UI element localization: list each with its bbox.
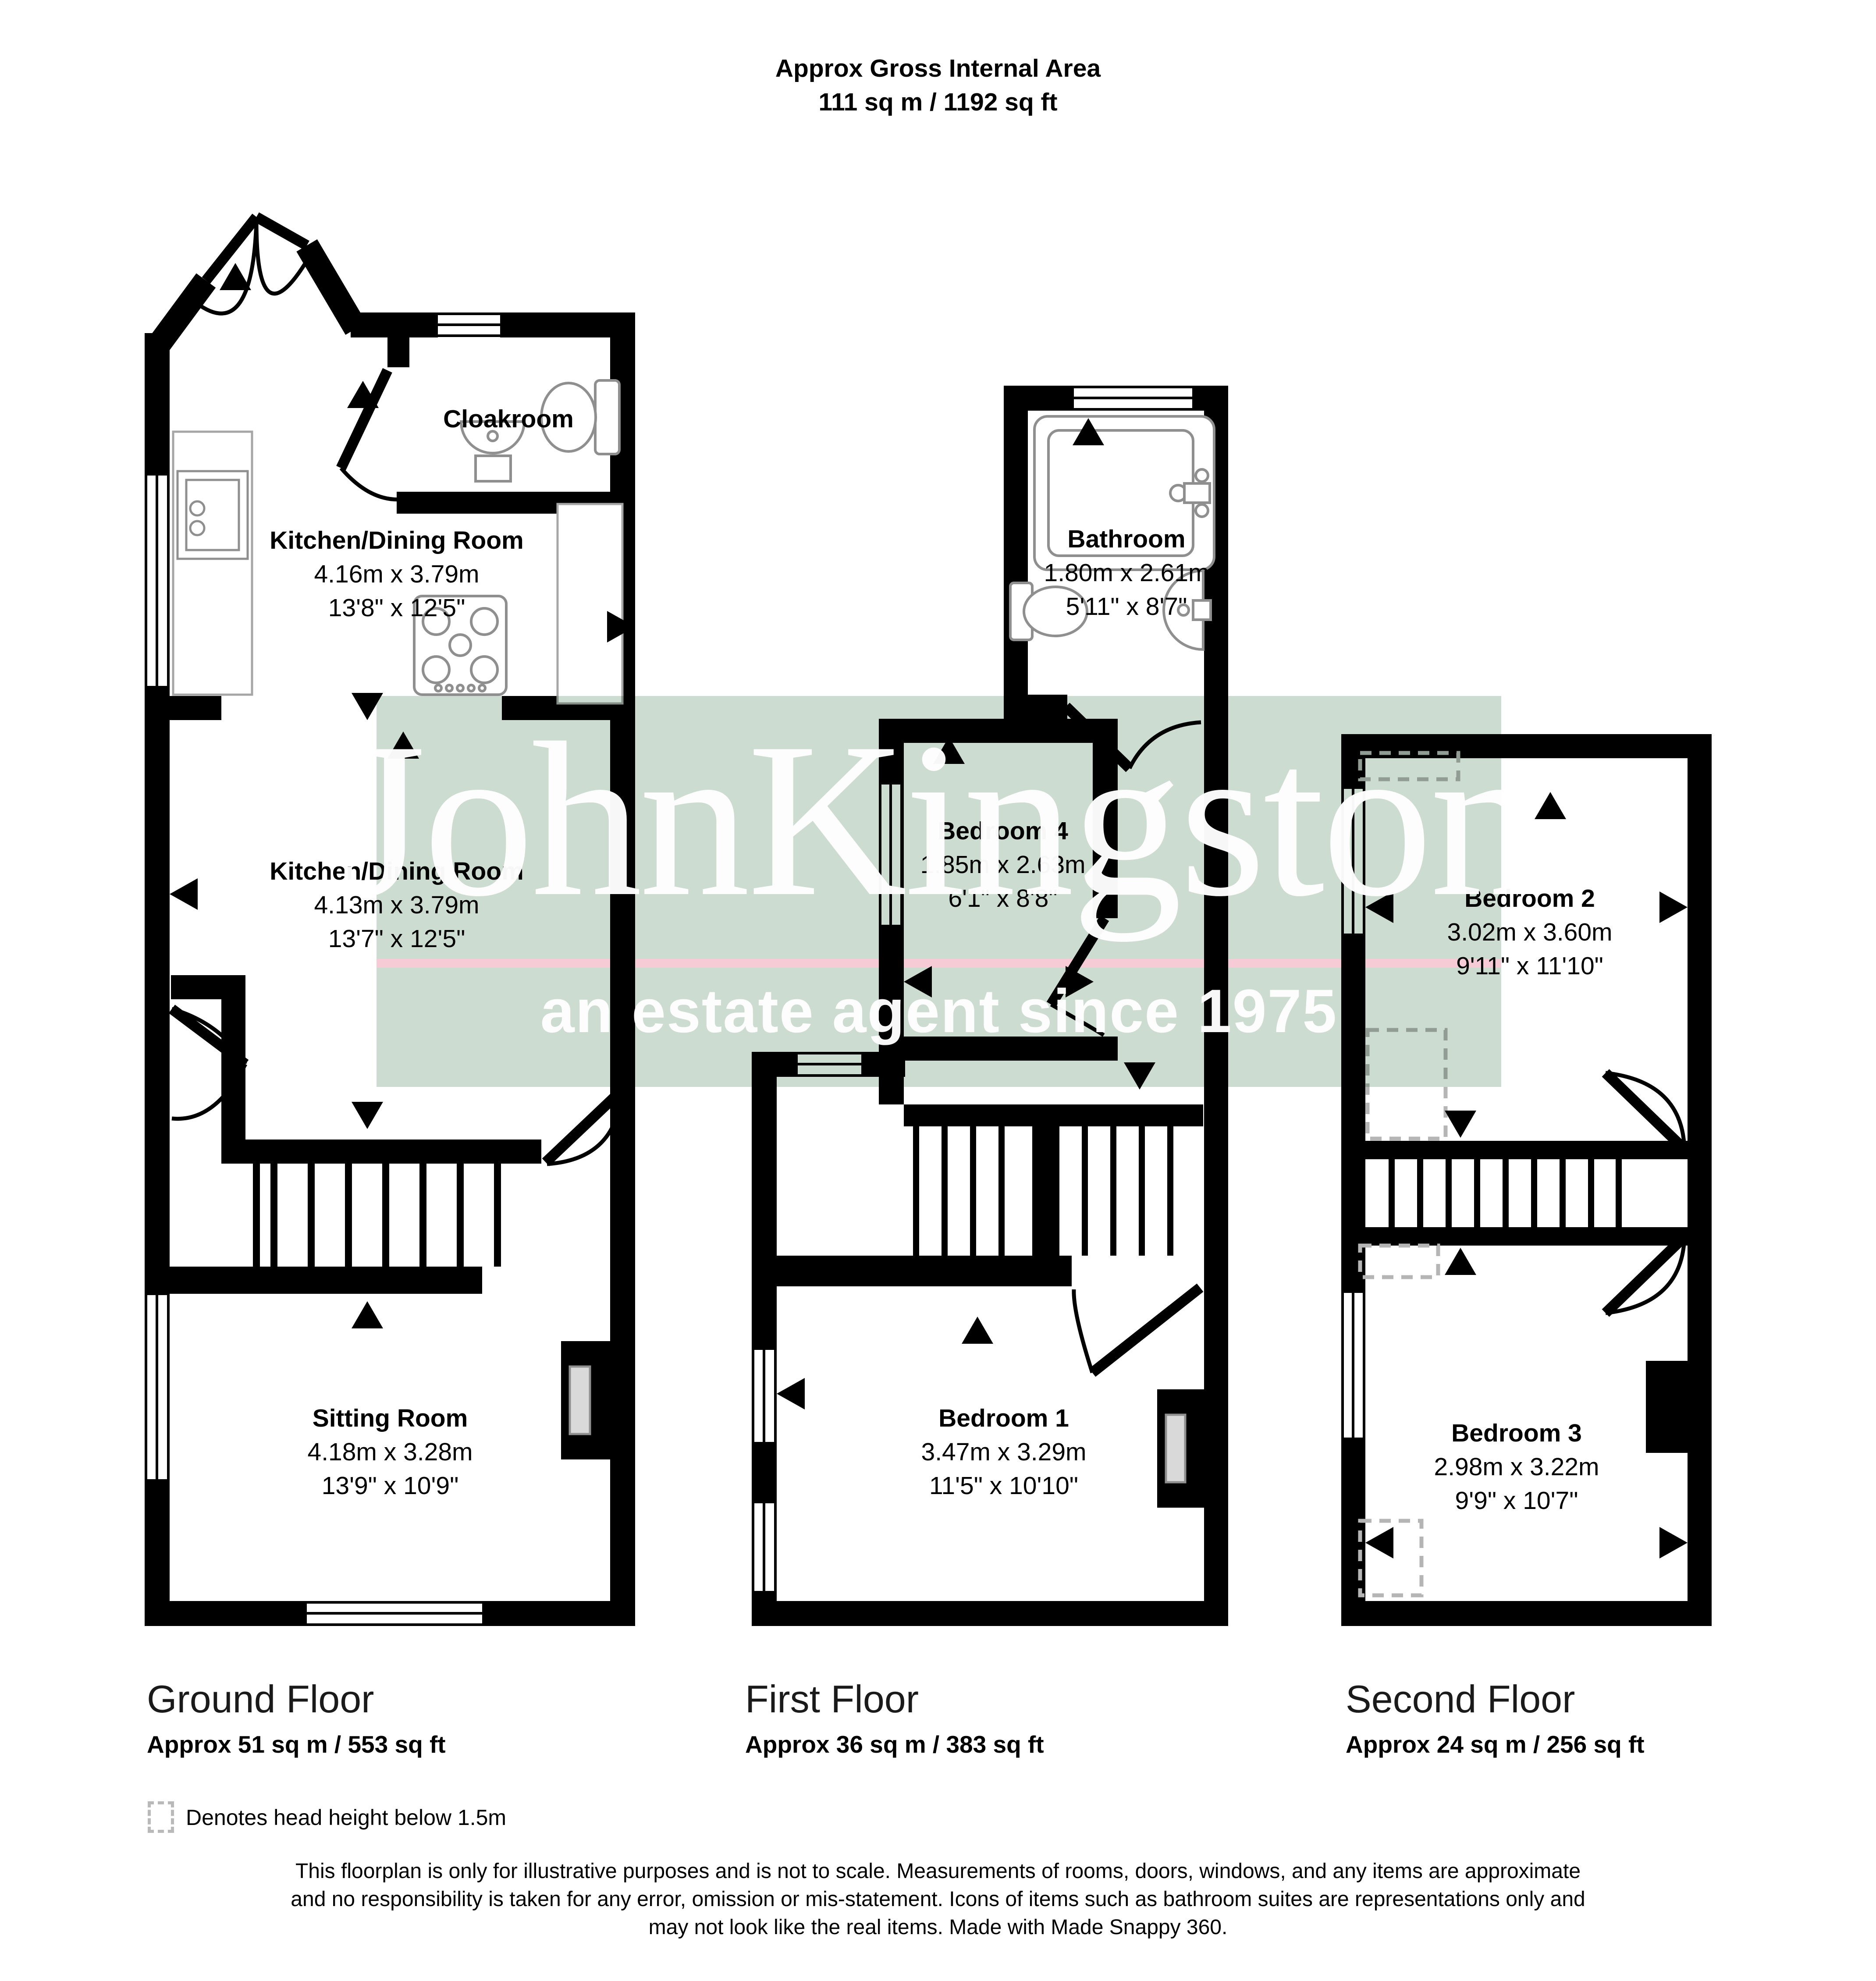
window-icon	[145, 1295, 170, 1479]
door-arc-icon	[1606, 1073, 1684, 1149]
fireplace-icon	[1157, 1389, 1204, 1508]
room-name: Sitting Room	[307, 1402, 473, 1435]
arrow-right-icon	[1659, 1527, 1688, 1559]
room-label-bedroom-3: Bedroom 3 2.98m x 3.22m 9'9" x 10'7"	[1434, 1417, 1599, 1518]
room-name: Bedroom 3	[1434, 1417, 1599, 1450]
room-dims-ft: 9'9" x 10'7"	[1434, 1484, 1599, 1518]
floorplan-page: Cloakroom Kitchen/Dining Room 4.16m x 3.…	[0, 0, 1876, 1981]
room-dims-ft: 5'11" x 8'7"	[1044, 590, 1209, 624]
door-arc-icon	[1074, 1288, 1200, 1373]
arrow-left-icon	[1365, 1527, 1393, 1559]
chimney-icon	[1646, 1361, 1688, 1453]
room-dims-ft: 13'9" x 10'9"	[307, 1469, 473, 1503]
title-line1: Approx Gross Internal Area	[775, 52, 1101, 85]
watermark-tagline-text: an estate agent since 1975	[540, 976, 1337, 1047]
room-label-sitting-room: Sitting Room 4.18m x 3.28m 13'9" x 10'9"	[307, 1402, 473, 1503]
window-icon	[1341, 1293, 1365, 1438]
door-arc-icon	[1606, 1237, 1684, 1313]
room-label-cloakroom: Cloakroom	[443, 402, 574, 436]
window-icon	[752, 1503, 777, 1591]
room-dims-m: 2.98m x 3.22m	[1434, 1450, 1599, 1484]
disclaimer-text: This floorplan is only for illustrative …	[291, 1857, 1585, 1942]
arrow-up-icon	[220, 263, 251, 290]
room-dims-ft: 11'5" x 10'10"	[921, 1469, 1086, 1503]
arrow-left-icon	[170, 878, 198, 910]
disclaimer-line2: and no responsibility is taken for any e…	[291, 1885, 1585, 1914]
arrow-up-icon	[1535, 792, 1566, 819]
stairs-ground-icon	[256, 1164, 497, 1267]
floor-area-ground: Approx 51 sq m / 553 sq ft	[147, 1730, 446, 1758]
arrow-left-icon	[777, 1378, 805, 1409]
window-icon	[438, 312, 500, 337]
room-label-bathroom: Bathroom 1.80m x 2.61m 5'11" x 8'7"	[1044, 522, 1209, 624]
window-icon	[1074, 386, 1192, 411]
room-name: Kitchen/Dining Room	[270, 524, 523, 557]
room-dims-m: 1.80m x 2.61m	[1044, 556, 1209, 590]
watermark-brand-text: JohnKingston	[340, 709, 1538, 930]
page-title: Approx Gross Internal Area 111 sq m / 11…	[775, 52, 1101, 119]
room-dims-m: 4.18m x 3.28m	[307, 1435, 473, 1469]
room-dims-ft: 13'8" x 12'5"	[270, 591, 523, 625]
room-dims-m: 3.47m x 3.29m	[921, 1435, 1086, 1469]
room-name: Bedroom 1	[921, 1402, 1086, 1435]
room-label-kitchen-dining-upper: Kitchen/Dining Room 4.16m x 3.79m 13'8" …	[270, 524, 523, 625]
legend-dashed-box-icon	[148, 1801, 174, 1833]
window-icon	[145, 476, 170, 686]
watermark-stripe	[377, 959, 1501, 968]
head-height-zone	[1360, 1246, 1438, 1277]
door-arc-icon	[341, 370, 420, 500]
room-name: Bathroom	[1044, 522, 1209, 556]
fireplace-icon	[561, 1341, 610, 1459]
arrow-down-icon	[1445, 1111, 1476, 1138]
floor-area-second: Approx 24 sq m / 256 sq ft	[1346, 1730, 1645, 1758]
floor-label-ground: Ground Floor	[147, 1677, 374, 1722]
stairs-second-icon	[1392, 1159, 1619, 1227]
floor-label-first: First Floor	[745, 1677, 919, 1722]
room-label-bedroom-1: Bedroom 1 3.47m x 3.29m 11'5" x 10'10"	[921, 1402, 1086, 1503]
window-icon	[752, 1350, 777, 1442]
room-dims-m: 4.16m x 3.79m	[270, 557, 523, 591]
legend-text: Denotes head height below 1.5m	[186, 1805, 506, 1830]
floor-area-first: Approx 36 sq m / 383 sq ft	[745, 1730, 1044, 1758]
arrow-up-icon	[1445, 1248, 1476, 1275]
floor-label-second: Second Floor	[1346, 1677, 1575, 1722]
disclaimer-line1: This floorplan is only for illustrative …	[291, 1857, 1585, 1885]
gable-entrance-doors-icon	[154, 217, 356, 351]
title-line2: 111 sq m / 1192 sq ft	[775, 85, 1101, 119]
room-name: Cloakroom	[443, 402, 574, 436]
arrow-right-icon	[1659, 891, 1688, 923]
arrow-up-icon	[352, 1301, 383, 1328]
arrow-up-icon	[962, 1317, 993, 1344]
window-icon	[307, 1601, 482, 1626]
arrow-down-icon	[352, 1102, 383, 1129]
disclaimer-line3: may not look like the real items. Made w…	[291, 1914, 1585, 1942]
